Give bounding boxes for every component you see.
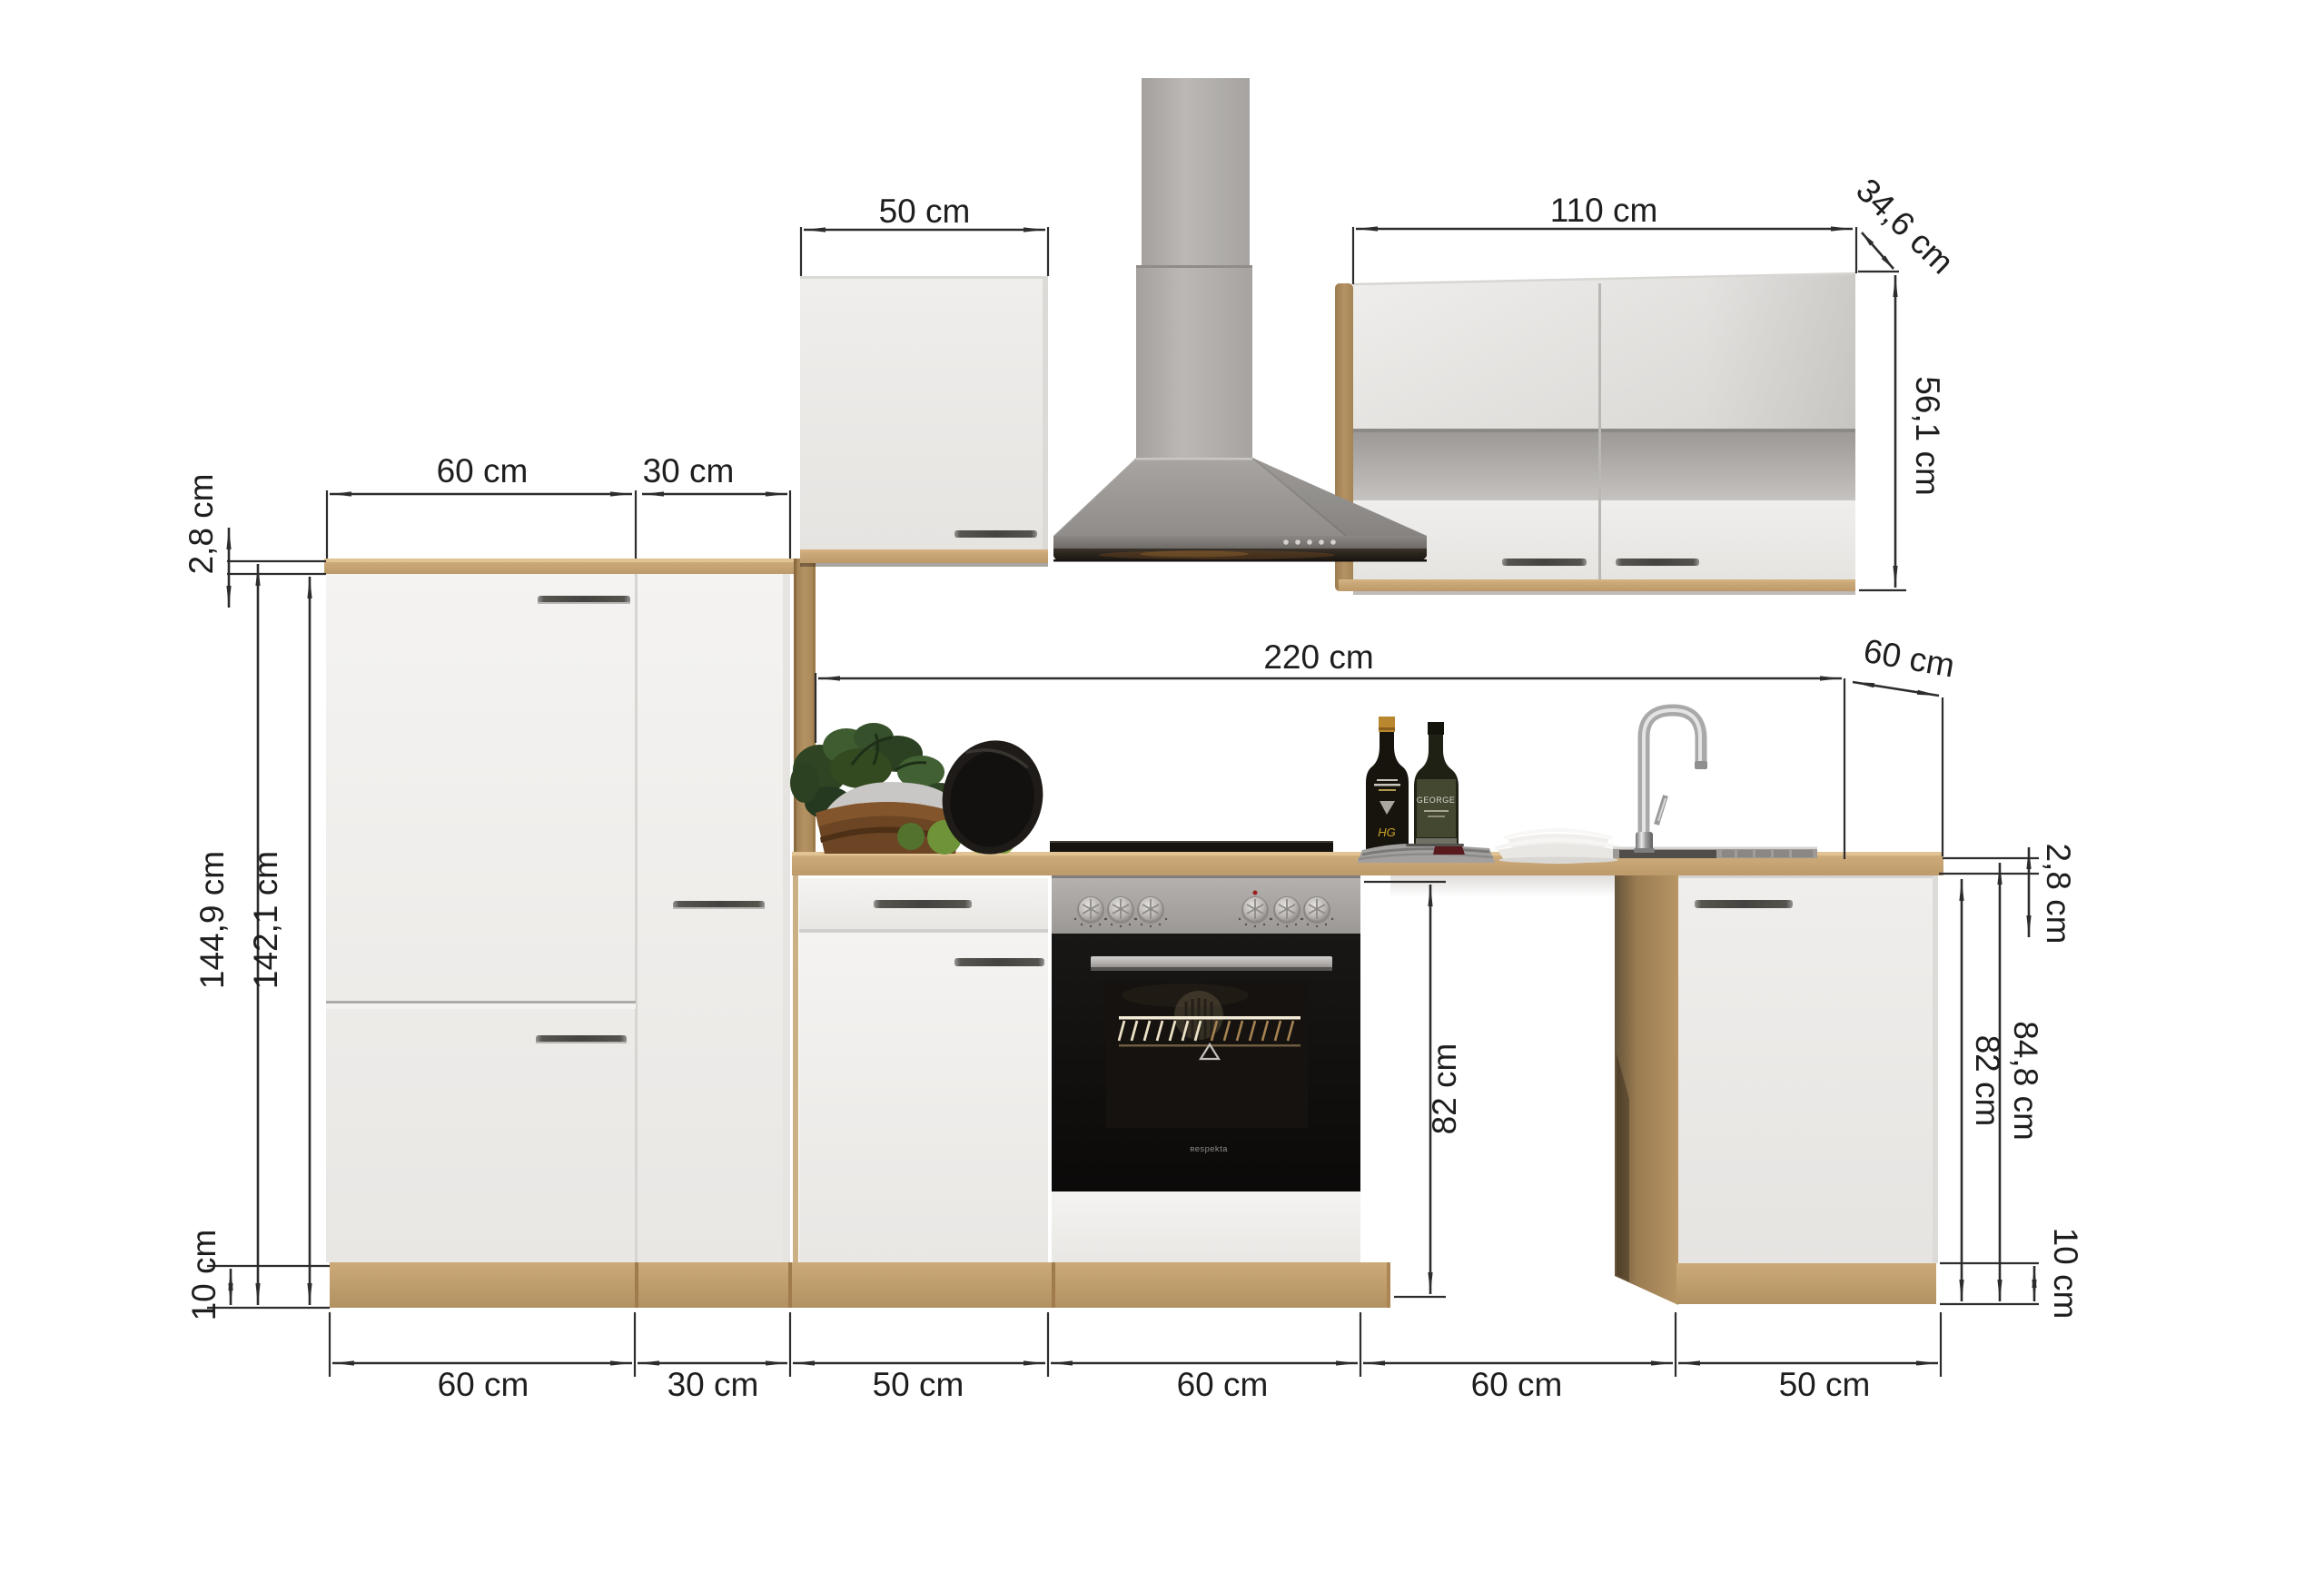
svg-text:110 cm: 110 cm [1550, 192, 1658, 229]
svg-text:142,1 cm: 142,1 cm [247, 851, 284, 989]
svg-text:84,8 cm: 84,8 cm [2007, 1021, 2044, 1141]
svg-text:144,9 cm: 144,9 cm [193, 851, 231, 989]
svg-text:220 cm: 220 cm [1263, 638, 1373, 676]
svg-text:34,6 cm: 34,6 cm [1849, 172, 1961, 282]
svg-text:2,8 cm: 2,8 cm [2040, 843, 2077, 944]
svg-text:2,8 cm: 2,8 cm [183, 473, 220, 574]
svg-text:50 cm: 50 cm [1779, 1366, 1871, 1403]
svg-text:10 cm: 10 cm [185, 1230, 223, 1321]
svg-text:60 cm: 60 cm [1861, 632, 1957, 685]
svg-text:GEORGE: GEORGE [1417, 796, 1456, 805]
svg-text:50 cm: 50 cm [873, 1366, 964, 1403]
svg-text:60 cm: 60 cm [437, 452, 529, 489]
svg-text:82 cm: 82 cm [1969, 1035, 2006, 1127]
svg-text:ʀespekta: ʀespekta [1190, 1144, 1228, 1154]
svg-text:60 cm: 60 cm [1471, 1366, 1563, 1403]
svg-text:82 cm: 82 cm [1426, 1043, 1463, 1135]
svg-text:HG: HG [1378, 826, 1396, 839]
svg-text:60 cm: 60 cm [438, 1366, 529, 1403]
svg-text:60 cm: 60 cm [1177, 1366, 1269, 1403]
svg-text:50 cm: 50 cm [879, 193, 971, 230]
svg-text:30 cm: 30 cm [668, 1366, 759, 1403]
svg-text:10 cm: 10 cm [2047, 1228, 2084, 1320]
svg-text:30 cm: 30 cm [643, 452, 735, 489]
svg-text:56,1 cm: 56,1 cm [1909, 376, 1946, 496]
